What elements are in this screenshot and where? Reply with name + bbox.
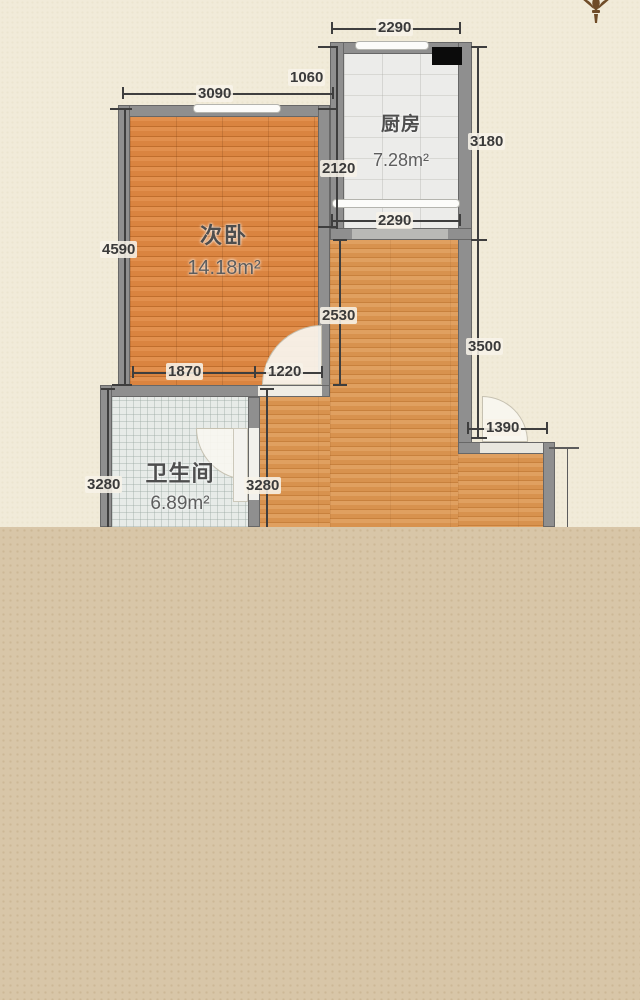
dim-tick [321, 366, 323, 378]
floorplan-screenshot: 2290 1060 3090 3180 2120 4590 2290 2530 … [0, 0, 640, 1000]
floor-hall-left [258, 397, 330, 527]
dim-tick [331, 214, 333, 226]
dim-tick [132, 366, 134, 378]
dim-tick [254, 366, 256, 378]
dim-tick [471, 239, 487, 241]
dim-tick [459, 22, 461, 34]
room-name-bathroom: 卫生间 [112, 462, 248, 486]
wall-entry-right [543, 442, 555, 527]
dim-tick [459, 214, 461, 226]
room-area-bedroom: 14.18m² [130, 257, 318, 280]
dim-tick [101, 388, 115, 390]
floor-hall-main [330, 240, 458, 527]
room-label-kitchen: 厨房 7.28m² [344, 114, 458, 171]
stove-counter [432, 47, 462, 65]
dim-tick [112, 384, 132, 386]
dim-tick [260, 388, 274, 390]
dim-label-entry: 1390 [484, 419, 521, 436]
dim-tick [471, 46, 487, 48]
dim-label-bedroom-top: 3090 [196, 85, 233, 102]
dim-tick [318, 108, 338, 110]
dim-tick [333, 239, 347, 241]
dim-line [477, 47, 479, 438]
floorplan: 2290 1060 3090 3180 2120 4590 2290 2530 … [0, 0, 640, 527]
dim-line [266, 389, 268, 527]
dim-tick [331, 22, 333, 34]
dim-tick [318, 46, 338, 48]
dim-extension-tick [549, 447, 579, 449]
floor-hall-entry [458, 454, 543, 527]
room-name-kitchen: 厨房 [344, 114, 458, 136]
dim-tick [546, 422, 548, 434]
wall-kitchen-hall-right [458, 42, 472, 454]
dim-tick [467, 422, 469, 434]
room-area-bathroom: 6.89m² [112, 493, 248, 515]
dim-label-kitchen-bottom: 2290 [376, 212, 413, 229]
dim-label-kitchen-right: 3180 [468, 133, 505, 150]
sill-kitchen-bottom [332, 199, 460, 208]
dim-label-hall-right: 3500 [466, 338, 503, 355]
dim-line [107, 389, 109, 527]
dim-label-kitchen-top: 2290 [376, 19, 413, 36]
dim-tick [122, 87, 124, 99]
room-label-bedroom: 次卧 14.18m² [130, 224, 318, 280]
dim-tick [471, 437, 487, 439]
dim-label-gap: 1060 [288, 69, 325, 86]
dim-tick [318, 226, 338, 228]
dim-tick [110, 108, 132, 110]
background-lower-band [0, 527, 640, 1000]
window-bedroom [193, 104, 281, 113]
dim-label-hall-left: 2530 [320, 307, 357, 324]
window-kitchen-top [355, 41, 429, 50]
dim-label-bedroom-door: 1220 [266, 363, 303, 380]
door-opening-entry [480, 443, 543, 453]
door-opening-kitchen [352, 229, 448, 239]
fleur-ornament-icon [576, 0, 616, 27]
room-area-kitchen: 7.28m² [344, 150, 458, 171]
dim-label-bedroom-bottom: 1870 [166, 363, 203, 380]
dim-tick [332, 87, 334, 99]
wall-bathroom-left [100, 385, 112, 527]
room-name-bedroom: 次卧 [130, 224, 318, 248]
dim-tick [333, 384, 347, 386]
dim-extension-line [567, 449, 568, 527]
dim-line [336, 48, 338, 229]
dim-label-bath-right: 3280 [244, 477, 281, 494]
room-label-bathroom: 卫生间 6.89m² [112, 462, 248, 515]
